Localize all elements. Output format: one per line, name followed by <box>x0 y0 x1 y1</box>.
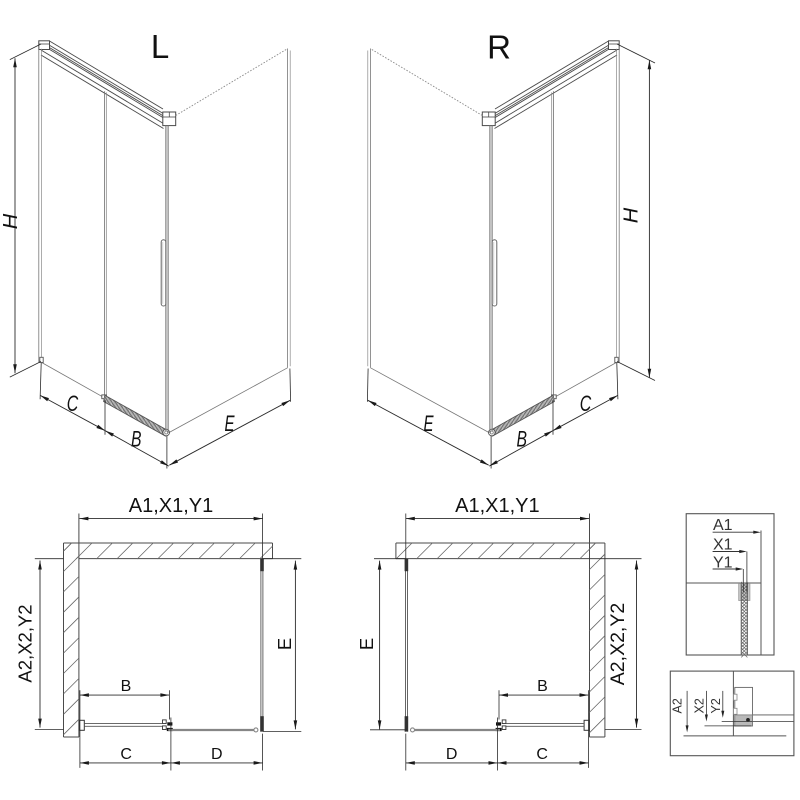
svg-text:B: B <box>131 427 142 452</box>
svg-text:E: E <box>356 638 377 650</box>
svg-text:A1,X1,Y1: A1,X1,Y1 <box>129 495 214 517</box>
svg-text:D: D <box>211 746 223 763</box>
svg-text:A1: A1 <box>713 517 733 534</box>
svg-text:A2,X2,Y2: A2,X2,Y2 <box>15 604 36 682</box>
svg-text:R: R <box>487 29 511 66</box>
svg-text:E: E <box>274 638 295 650</box>
svg-text:A2,X2,Y2: A2,X2,Y2 <box>607 603 629 685</box>
svg-text:L: L <box>151 28 169 65</box>
svg-text:E: E <box>424 411 435 436</box>
svg-text:A2: A2 <box>671 698 685 713</box>
svg-text:Y2: Y2 <box>709 698 723 713</box>
svg-text:C: C <box>120 746 132 763</box>
svg-text:C: C <box>580 391 592 416</box>
svg-text:D: D <box>446 746 458 763</box>
svg-text:B: B <box>516 427 527 452</box>
svg-text:B: B <box>537 678 548 695</box>
svg-text:A1,X1,Y1: A1,X1,Y1 <box>455 495 540 517</box>
svg-text:B: B <box>121 678 132 695</box>
svg-text:H: H <box>0 214 22 230</box>
svg-text:X2: X2 <box>692 698 706 713</box>
svg-text:X1: X1 <box>713 536 733 553</box>
svg-text:C: C <box>536 746 548 763</box>
svg-text:E: E <box>225 411 236 436</box>
svg-text:H: H <box>619 208 642 224</box>
svg-text:C: C <box>67 391 79 416</box>
